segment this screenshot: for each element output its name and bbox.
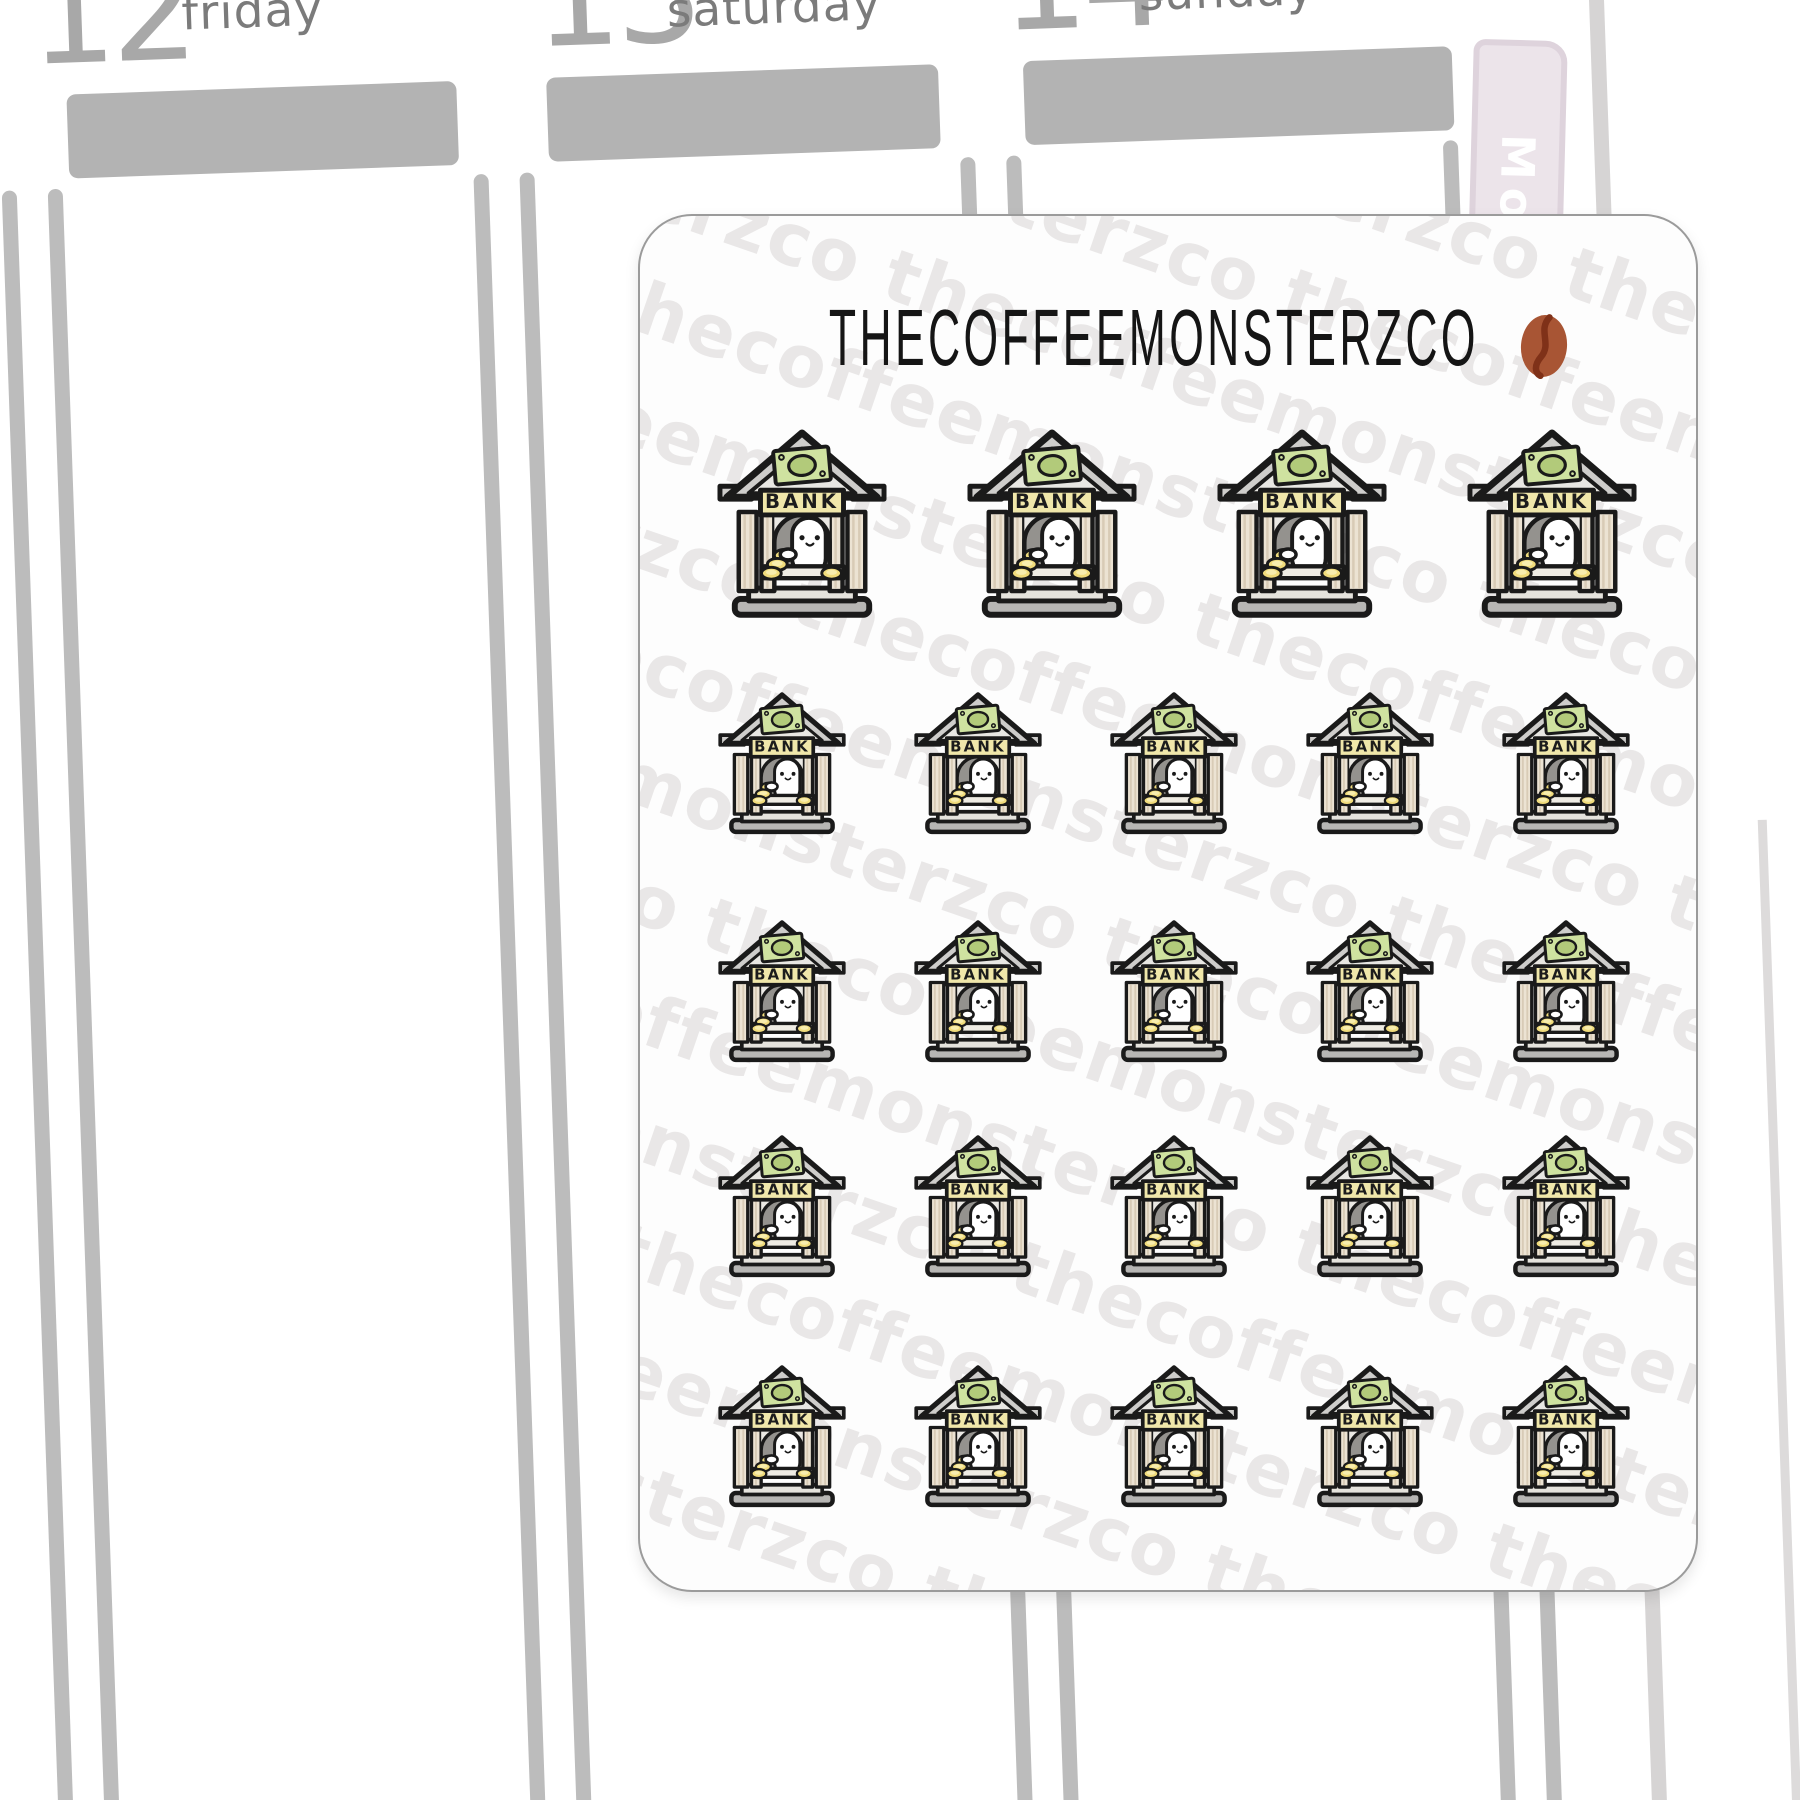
bank-sticker: BANK	[718, 1132, 846, 1278]
money-bill	[760, 1148, 804, 1177]
character-arm	[1550, 1010, 1562, 1018]
bank-sticker: BANK	[967, 425, 1137, 619]
money-bill	[1023, 446, 1081, 484]
money-bill	[1273, 446, 1331, 484]
sticker-sheet: thecoffeemonsterzco thecoffeemonsterzco …	[638, 214, 1698, 1592]
bank-sticker: BANK	[914, 1362, 1042, 1508]
bank-sign-label: BANK	[754, 738, 810, 756]
bank-sticker-graphic: BANK	[1306, 1132, 1434, 1278]
character-arm	[1158, 1225, 1170, 1233]
bank-sticker: BANK	[914, 917, 1042, 1063]
sheet-header: THECOFFEEMONSTERZCO	[640, 296, 1696, 380]
bank-sticker-graphic: BANK	[914, 1132, 1042, 1278]
bank-sign-label: BANK	[1538, 738, 1594, 756]
brand-title: THECOFFEEMONSTERZCO	[829, 292, 1479, 384]
bank-sticker: BANK	[914, 1132, 1042, 1278]
bank-sign-label: BANK	[1265, 490, 1339, 513]
bank-sticker-graphic: BANK	[718, 1362, 846, 1508]
bank-sign-label: BANK	[754, 1411, 810, 1429]
day-number-12: 12	[26, 0, 194, 86]
bank-sticker-graphic: BANK	[1502, 1362, 1630, 1508]
bank-sticker-graphic: BANK	[967, 425, 1137, 619]
bank-sticker: BANK	[1502, 1362, 1630, 1508]
bank-sticker: BANK	[914, 689, 1042, 835]
bank-sticker-graphic: BANK	[1110, 1132, 1238, 1278]
money-bill	[1544, 1148, 1588, 1177]
bank-sticker: BANK	[1306, 689, 1434, 835]
bank-sticker: BANK	[1110, 917, 1238, 1063]
character-arm	[1530, 549, 1546, 560]
money-bill	[1152, 705, 1196, 734]
bank-sticker: BANK	[1502, 917, 1630, 1063]
bank-sign-label: BANK	[950, 1181, 1006, 1199]
bank-sign-label: BANK	[1342, 1411, 1398, 1429]
money-bill	[1544, 1378, 1588, 1407]
bank-sticker: BANK	[717, 425, 887, 619]
bank-sticker: BANK	[1110, 1132, 1238, 1278]
character-arm	[766, 782, 778, 790]
bank-sticker-graphic: BANK	[718, 917, 846, 1063]
character-arm	[1158, 1010, 1170, 1018]
character-arm	[962, 782, 974, 790]
money-bill	[956, 933, 1000, 962]
character-arm	[1354, 1225, 1366, 1233]
week-shade-band	[546, 64, 941, 162]
character-arm	[1550, 782, 1562, 790]
character-arm	[766, 1455, 778, 1463]
bank-sign-label: BANK	[765, 490, 839, 513]
money-bill	[1348, 1378, 1392, 1407]
character-arm	[1158, 1455, 1170, 1463]
bank-sign-label: BANK	[1342, 738, 1398, 756]
bank-sign-label: BANK	[950, 738, 1006, 756]
character-arm	[766, 1225, 778, 1233]
money-bill	[1348, 933, 1392, 962]
character-arm	[1158, 782, 1170, 790]
bank-sticker: BANK	[718, 689, 846, 835]
bank-sign-label: BANK	[754, 966, 810, 984]
bank-sticker: BANK	[1306, 917, 1434, 1063]
money-bill	[1152, 1378, 1196, 1407]
money-bill	[773, 446, 831, 484]
bank-sign-label: BANK	[754, 1181, 810, 1199]
character-arm	[1550, 1225, 1562, 1233]
bank-sign-label: BANK	[1538, 1181, 1594, 1199]
bank-sticker-graphic: BANK	[718, 689, 846, 835]
character-arm	[1354, 1010, 1366, 1018]
money-bill	[760, 1378, 804, 1407]
bank-sticker-graphic: BANK	[1306, 689, 1434, 835]
bank-sign-label: BANK	[1538, 1411, 1594, 1429]
character-arm	[962, 1455, 974, 1463]
character-arm	[780, 549, 796, 560]
bank-sticker: BANK	[718, 1362, 846, 1508]
bank-sticker-graphic: BANK	[914, 917, 1042, 1063]
bank-sign-label: BANK	[1538, 966, 1594, 984]
bank-sticker: BANK	[1502, 1132, 1630, 1278]
character-arm	[962, 1010, 974, 1018]
money-bill	[760, 933, 804, 962]
money-bill	[1152, 1148, 1196, 1177]
bank-sticker: BANK	[1306, 1132, 1434, 1278]
bank-sign-label: BANK	[1146, 1411, 1202, 1429]
bank-sticker-graphic: BANK	[1306, 917, 1434, 1063]
bank-sticker-graphic: BANK	[914, 689, 1042, 835]
money-bill	[1544, 705, 1588, 734]
bank-sticker: BANK	[1110, 1362, 1238, 1508]
money-bill	[956, 1148, 1000, 1177]
week-shade-band	[66, 81, 459, 179]
bank-sticker-graphic: BANK	[1110, 917, 1238, 1063]
bank-sticker-graphic: BANK	[1217, 425, 1387, 619]
coffee-bean-icon	[1519, 313, 1569, 379]
day-name-saturday: saturday	[666, 0, 882, 35]
bank-sign-label: BANK	[1515, 490, 1589, 513]
sticker-row: BANK	[718, 1132, 1630, 1278]
character-arm	[1354, 1455, 1366, 1463]
bank-sticker-graphic: BANK	[914, 1362, 1042, 1508]
bank-sign-label: BANK	[950, 1411, 1006, 1429]
sticker-row: BANK	[718, 917, 1630, 1063]
bank-sign-label: BANK	[1146, 966, 1202, 984]
money-bill	[1152, 933, 1196, 962]
sticker-row: BANK	[718, 1362, 1630, 1508]
character-arm	[1280, 549, 1296, 560]
money-bill	[956, 705, 1000, 734]
money-bill	[956, 1378, 1000, 1407]
money-bill	[1348, 1148, 1392, 1177]
character-arm	[1550, 1455, 1562, 1463]
bank-sticker: BANK	[1217, 425, 1387, 619]
bank-sticker-graphic: BANK	[1502, 917, 1630, 1063]
bank-sticker-graphic: BANK	[1502, 689, 1630, 835]
bank-sign-label: BANK	[1342, 1181, 1398, 1199]
bank-sticker-graphic: BANK	[1306, 1362, 1434, 1508]
money-bill	[1544, 933, 1588, 962]
day-name-friday: friday	[181, 0, 324, 38]
money-bill	[760, 705, 804, 734]
bank-sticker: BANK	[1306, 1362, 1434, 1508]
bank-sign-label: BANK	[1342, 966, 1398, 984]
character-arm	[766, 1010, 778, 1018]
character-arm	[962, 1225, 974, 1233]
bank-sticker-graphic: BANK	[1502, 1132, 1630, 1278]
bank-sticker: BANK	[718, 917, 846, 1063]
bank-sign-label: BANK	[1146, 738, 1202, 756]
product-photo: 12 friday 13 saturday 14 sunday Mo theco…	[0, 0, 1800, 1800]
sticker-row: BANK	[718, 689, 1630, 835]
bank-sticker-graphic: BANK	[717, 425, 887, 619]
bank-sticker-graphic: BANK	[718, 1132, 846, 1278]
sticker-row: BANK	[717, 425, 1637, 619]
money-bill	[1523, 446, 1581, 484]
bank-sign-label: BANK	[950, 966, 1006, 984]
character-arm	[1030, 549, 1046, 560]
bank-sticker: BANK	[1467, 425, 1637, 619]
bank-sign-label: BANK	[1146, 1181, 1202, 1199]
bank-sign-label: BANK	[1015, 490, 1089, 513]
page-edge-line	[1758, 820, 1800, 1800]
bank-sticker-graphic: BANK	[1467, 425, 1637, 619]
character-arm	[1354, 782, 1366, 790]
bank-sticker: BANK	[1110, 689, 1238, 835]
bank-sticker-graphic: BANK	[1110, 689, 1238, 835]
money-bill	[1348, 705, 1392, 734]
week-shade-band	[1023, 46, 1455, 145]
bank-sticker-graphic: BANK	[1110, 1362, 1238, 1508]
bank-sticker: BANK	[1502, 689, 1630, 835]
day-name-sunday: sunday	[1138, 0, 1316, 18]
